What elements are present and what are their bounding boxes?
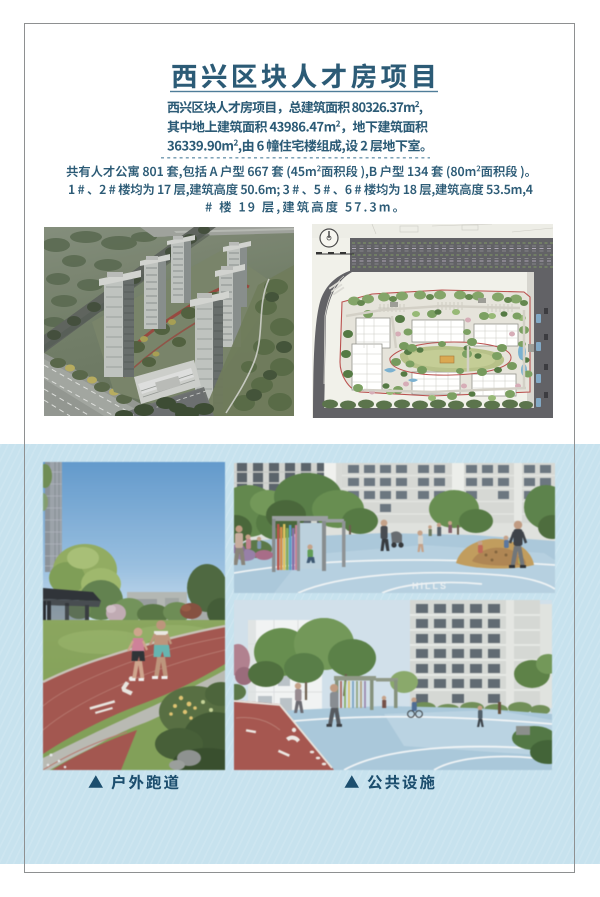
svg-text:HILLS: HILLS xyxy=(412,581,448,591)
